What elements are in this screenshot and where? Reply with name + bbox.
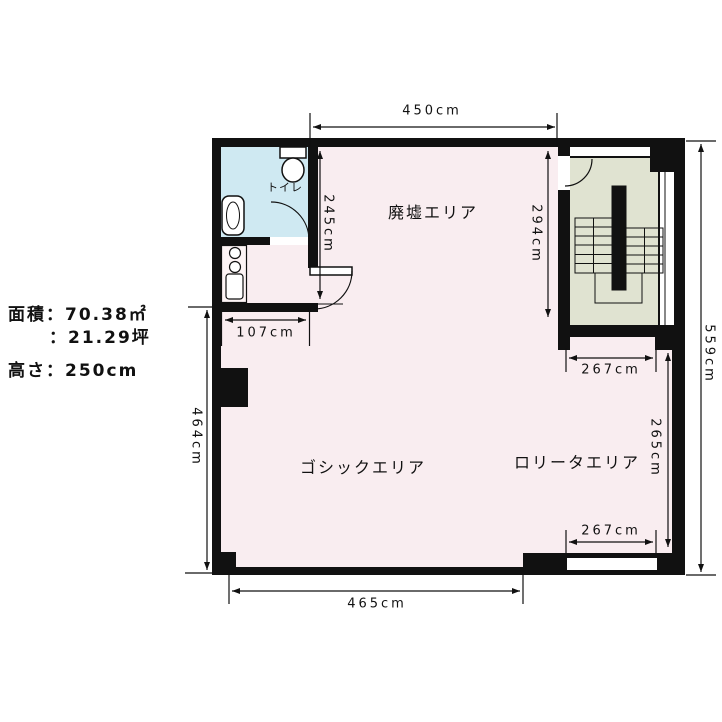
dim-west-inner-height: 245cm xyxy=(321,194,336,254)
dim-kitchen-width: 107cm xyxy=(236,326,296,341)
top-right-corner-block xyxy=(650,138,685,172)
info-height-line: 高さ：250cm xyxy=(8,356,138,381)
room-label-lolita: ロリータエリア xyxy=(514,449,640,473)
kitchen-bottom-wall xyxy=(212,303,318,312)
floorplan-canvas: 450cm 245cm 294cm 559cm 267cm 265cm 267c… xyxy=(0,0,722,722)
dim-bottom-width: 465cm xyxy=(347,597,407,612)
stairwell-floor xyxy=(570,158,658,325)
dim-west-wall-height: 464cm xyxy=(189,407,204,467)
stairwell-bottom-right-block xyxy=(655,325,685,350)
dim-top-width: 450cm xyxy=(402,104,462,119)
stairwell-right-window xyxy=(658,172,674,325)
top-wall xyxy=(212,138,685,147)
left-wall xyxy=(212,138,221,575)
room-label-gothic: ゴシックエリア xyxy=(300,454,426,478)
left-wall-column xyxy=(221,368,248,407)
info-area-line1: 面積：70.38㎡ xyxy=(8,300,148,325)
room-label-ruins: 廃墟エリア xyxy=(388,199,478,223)
bottom-left-corner-column xyxy=(218,552,236,575)
dim-lolita-bottom-width: 267cm xyxy=(581,524,641,539)
info-area-line2: ：21.29坪 xyxy=(49,323,151,348)
dim-stair-opening-width: 267cm xyxy=(581,363,641,378)
bottom-window xyxy=(567,558,657,570)
stairwell-top-window xyxy=(570,147,650,158)
dim-east-total-height: 559cm xyxy=(702,324,717,384)
stairwell-doorway-gap xyxy=(558,156,570,190)
toilet-block-right-wall xyxy=(308,147,318,268)
dim-stairwell-height: 294cm xyxy=(529,204,544,264)
toilet-doorway-gap xyxy=(270,237,308,245)
bottom-wall-thin xyxy=(212,567,523,575)
room-label-toilet: トイレ xyxy=(267,179,303,195)
dim-lolita-height: 265cm xyxy=(648,418,663,478)
